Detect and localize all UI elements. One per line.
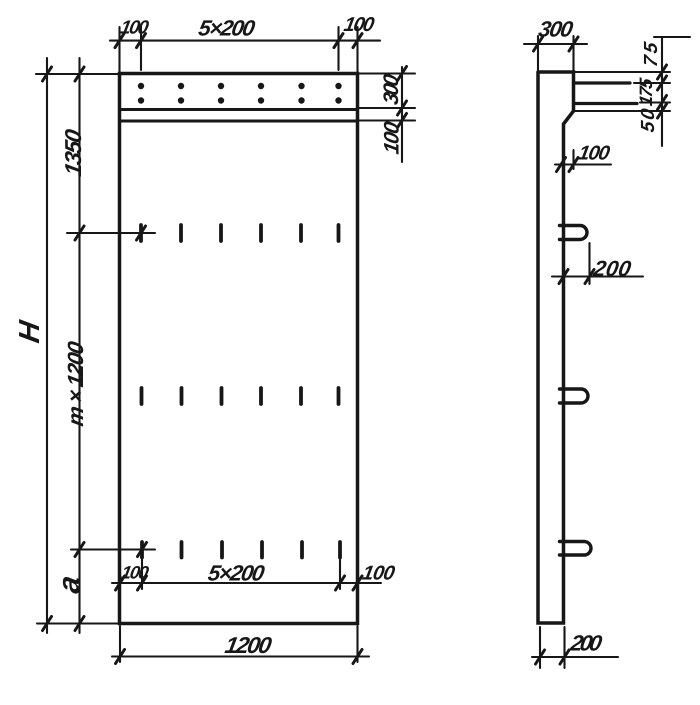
svg-text:100: 100 [342, 14, 376, 36]
svg-text:75: 75 [641, 40, 662, 68]
svg-text:100: 100 [119, 18, 151, 39]
svg-text:H: H [14, 318, 46, 345]
svg-text:100: 100 [120, 563, 150, 583]
svg-text:5×200: 5×200 [197, 16, 258, 41]
svg-text:100: 100 [577, 143, 612, 165]
svg-text:100: 100 [381, 120, 404, 156]
svg-text:300: 300 [380, 72, 403, 106]
svg-text:m × 1200: m × 1200 [63, 339, 88, 428]
svg-text:100: 100 [361, 563, 397, 585]
svg-text:a: a [53, 573, 86, 595]
svg-text:5×200: 5×200 [206, 561, 267, 586]
svg-text:1350: 1350 [60, 127, 86, 178]
svg-text:200: 200 [568, 631, 605, 656]
svg-text:300: 300 [537, 17, 576, 42]
svg-text:50: 50 [638, 107, 659, 134]
svg-text:1200: 1200 [223, 632, 274, 658]
svg-text:175: 175 [636, 76, 656, 107]
svg-text:200: 200 [591, 256, 634, 281]
